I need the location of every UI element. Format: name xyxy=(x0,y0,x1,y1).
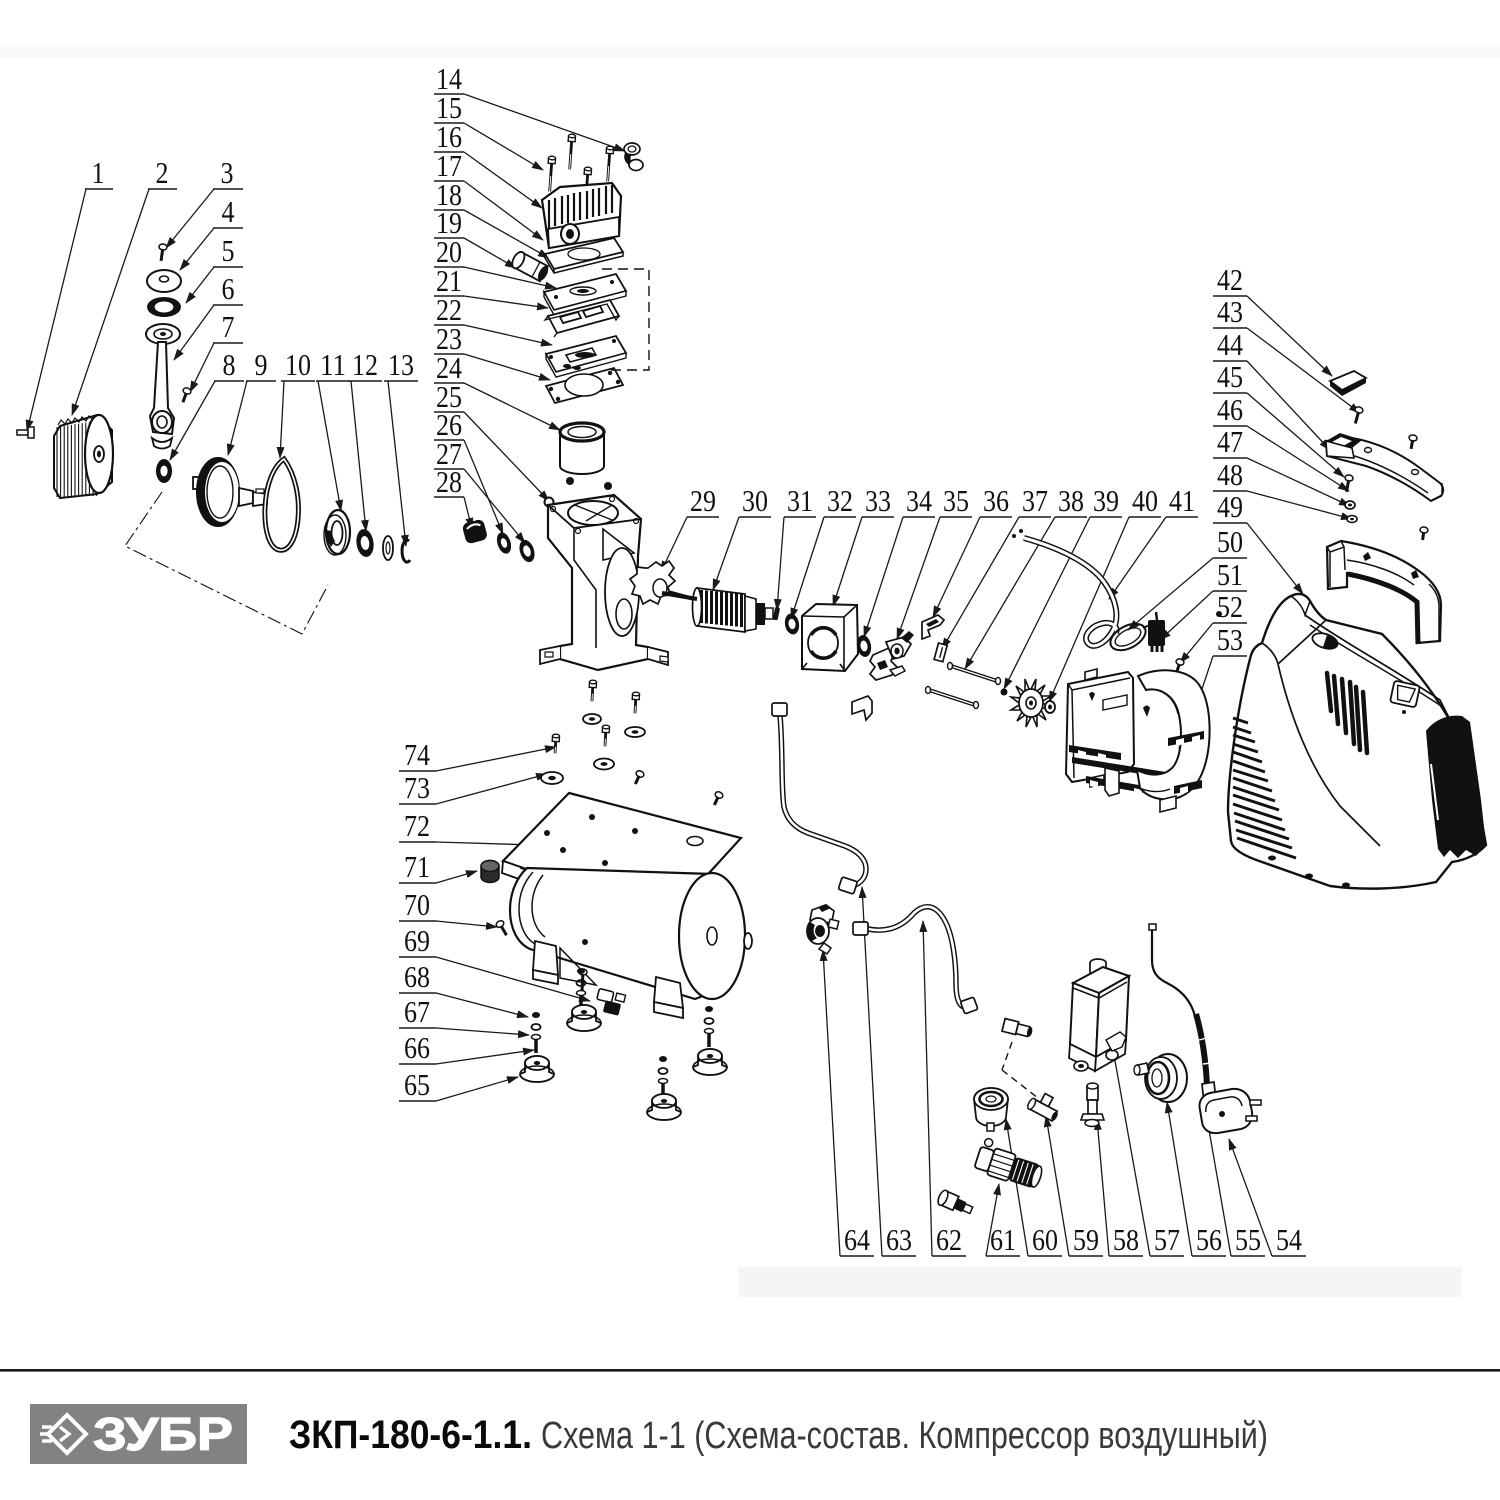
svg-text:60: 60 xyxy=(1032,1222,1058,1257)
svg-text:69: 69 xyxy=(404,923,430,958)
svg-text:67: 67 xyxy=(404,994,430,1029)
svg-text:33: 33 xyxy=(865,483,891,518)
svg-text:49: 49 xyxy=(1217,489,1243,524)
svg-text:41: 41 xyxy=(1169,483,1195,518)
svg-text:51: 51 xyxy=(1217,557,1243,592)
svg-text:38: 38 xyxy=(1058,483,1084,518)
svg-text:7: 7 xyxy=(222,309,235,344)
svg-text:34: 34 xyxy=(906,483,932,518)
svg-text:58: 58 xyxy=(1113,1222,1139,1257)
svg-text:ЗКП-180-6-1.1.: ЗКП-180-6-1.1. xyxy=(289,1413,532,1457)
svg-text:31: 31 xyxy=(787,483,813,518)
svg-text:28: 28 xyxy=(436,464,462,499)
svg-text:ЗУБР: ЗУБР xyxy=(93,1408,233,1460)
svg-text:61: 61 xyxy=(990,1222,1016,1257)
svg-text:70: 70 xyxy=(404,887,430,922)
svg-text:47: 47 xyxy=(1217,424,1243,459)
svg-text:53: 53 xyxy=(1217,622,1243,657)
svg-text:Схема 1-1 (Схема-состав. Компр: Схема 1-1 (Схема-состав. Компрессор возд… xyxy=(541,1415,1268,1457)
svg-text:5: 5 xyxy=(222,233,235,268)
svg-text:65: 65 xyxy=(404,1067,430,1102)
svg-text:2: 2 xyxy=(156,155,169,190)
svg-text:37: 37 xyxy=(1022,483,1048,518)
svg-text:64: 64 xyxy=(844,1222,870,1257)
svg-text:68: 68 xyxy=(404,959,430,994)
svg-text:62: 62 xyxy=(936,1222,962,1257)
svg-text:13: 13 xyxy=(388,347,414,382)
svg-text:4: 4 xyxy=(222,194,235,229)
svg-text:71: 71 xyxy=(404,849,430,884)
svg-text:66: 66 xyxy=(404,1030,430,1065)
svg-text:50: 50 xyxy=(1217,524,1243,559)
svg-text:1: 1 xyxy=(92,155,105,190)
svg-text:43: 43 xyxy=(1217,294,1243,329)
svg-text:11: 11 xyxy=(320,347,346,382)
svg-text:10: 10 xyxy=(285,347,311,382)
svg-text:35: 35 xyxy=(943,483,969,518)
svg-text:8: 8 xyxy=(223,347,236,382)
svg-text:74: 74 xyxy=(404,737,430,772)
svg-text:59: 59 xyxy=(1073,1222,1099,1257)
svg-text:63: 63 xyxy=(886,1222,912,1257)
svg-text:6: 6 xyxy=(222,271,235,306)
svg-text:3: 3 xyxy=(221,155,234,190)
svg-text:52: 52 xyxy=(1217,589,1243,624)
svg-text:9: 9 xyxy=(255,347,268,382)
svg-text:46: 46 xyxy=(1217,392,1243,427)
svg-text:57: 57 xyxy=(1154,1222,1180,1257)
svg-text:48: 48 xyxy=(1217,457,1243,492)
svg-text:32: 32 xyxy=(827,483,853,518)
svg-text:12: 12 xyxy=(352,347,378,382)
svg-text:56: 56 xyxy=(1196,1222,1222,1257)
svg-text:73: 73 xyxy=(404,770,430,805)
svg-text:55: 55 xyxy=(1235,1222,1261,1257)
svg-text:54: 54 xyxy=(1276,1222,1302,1257)
svg-text:36: 36 xyxy=(983,483,1009,518)
svg-text:39: 39 xyxy=(1093,483,1119,518)
svg-text:44: 44 xyxy=(1217,327,1243,362)
svg-text:40: 40 xyxy=(1132,483,1158,518)
svg-text:42: 42 xyxy=(1217,262,1243,297)
svg-text:30: 30 xyxy=(742,483,768,518)
svg-text:29: 29 xyxy=(690,483,716,518)
svg-text:45: 45 xyxy=(1217,359,1243,394)
svg-text:72: 72 xyxy=(404,808,430,843)
